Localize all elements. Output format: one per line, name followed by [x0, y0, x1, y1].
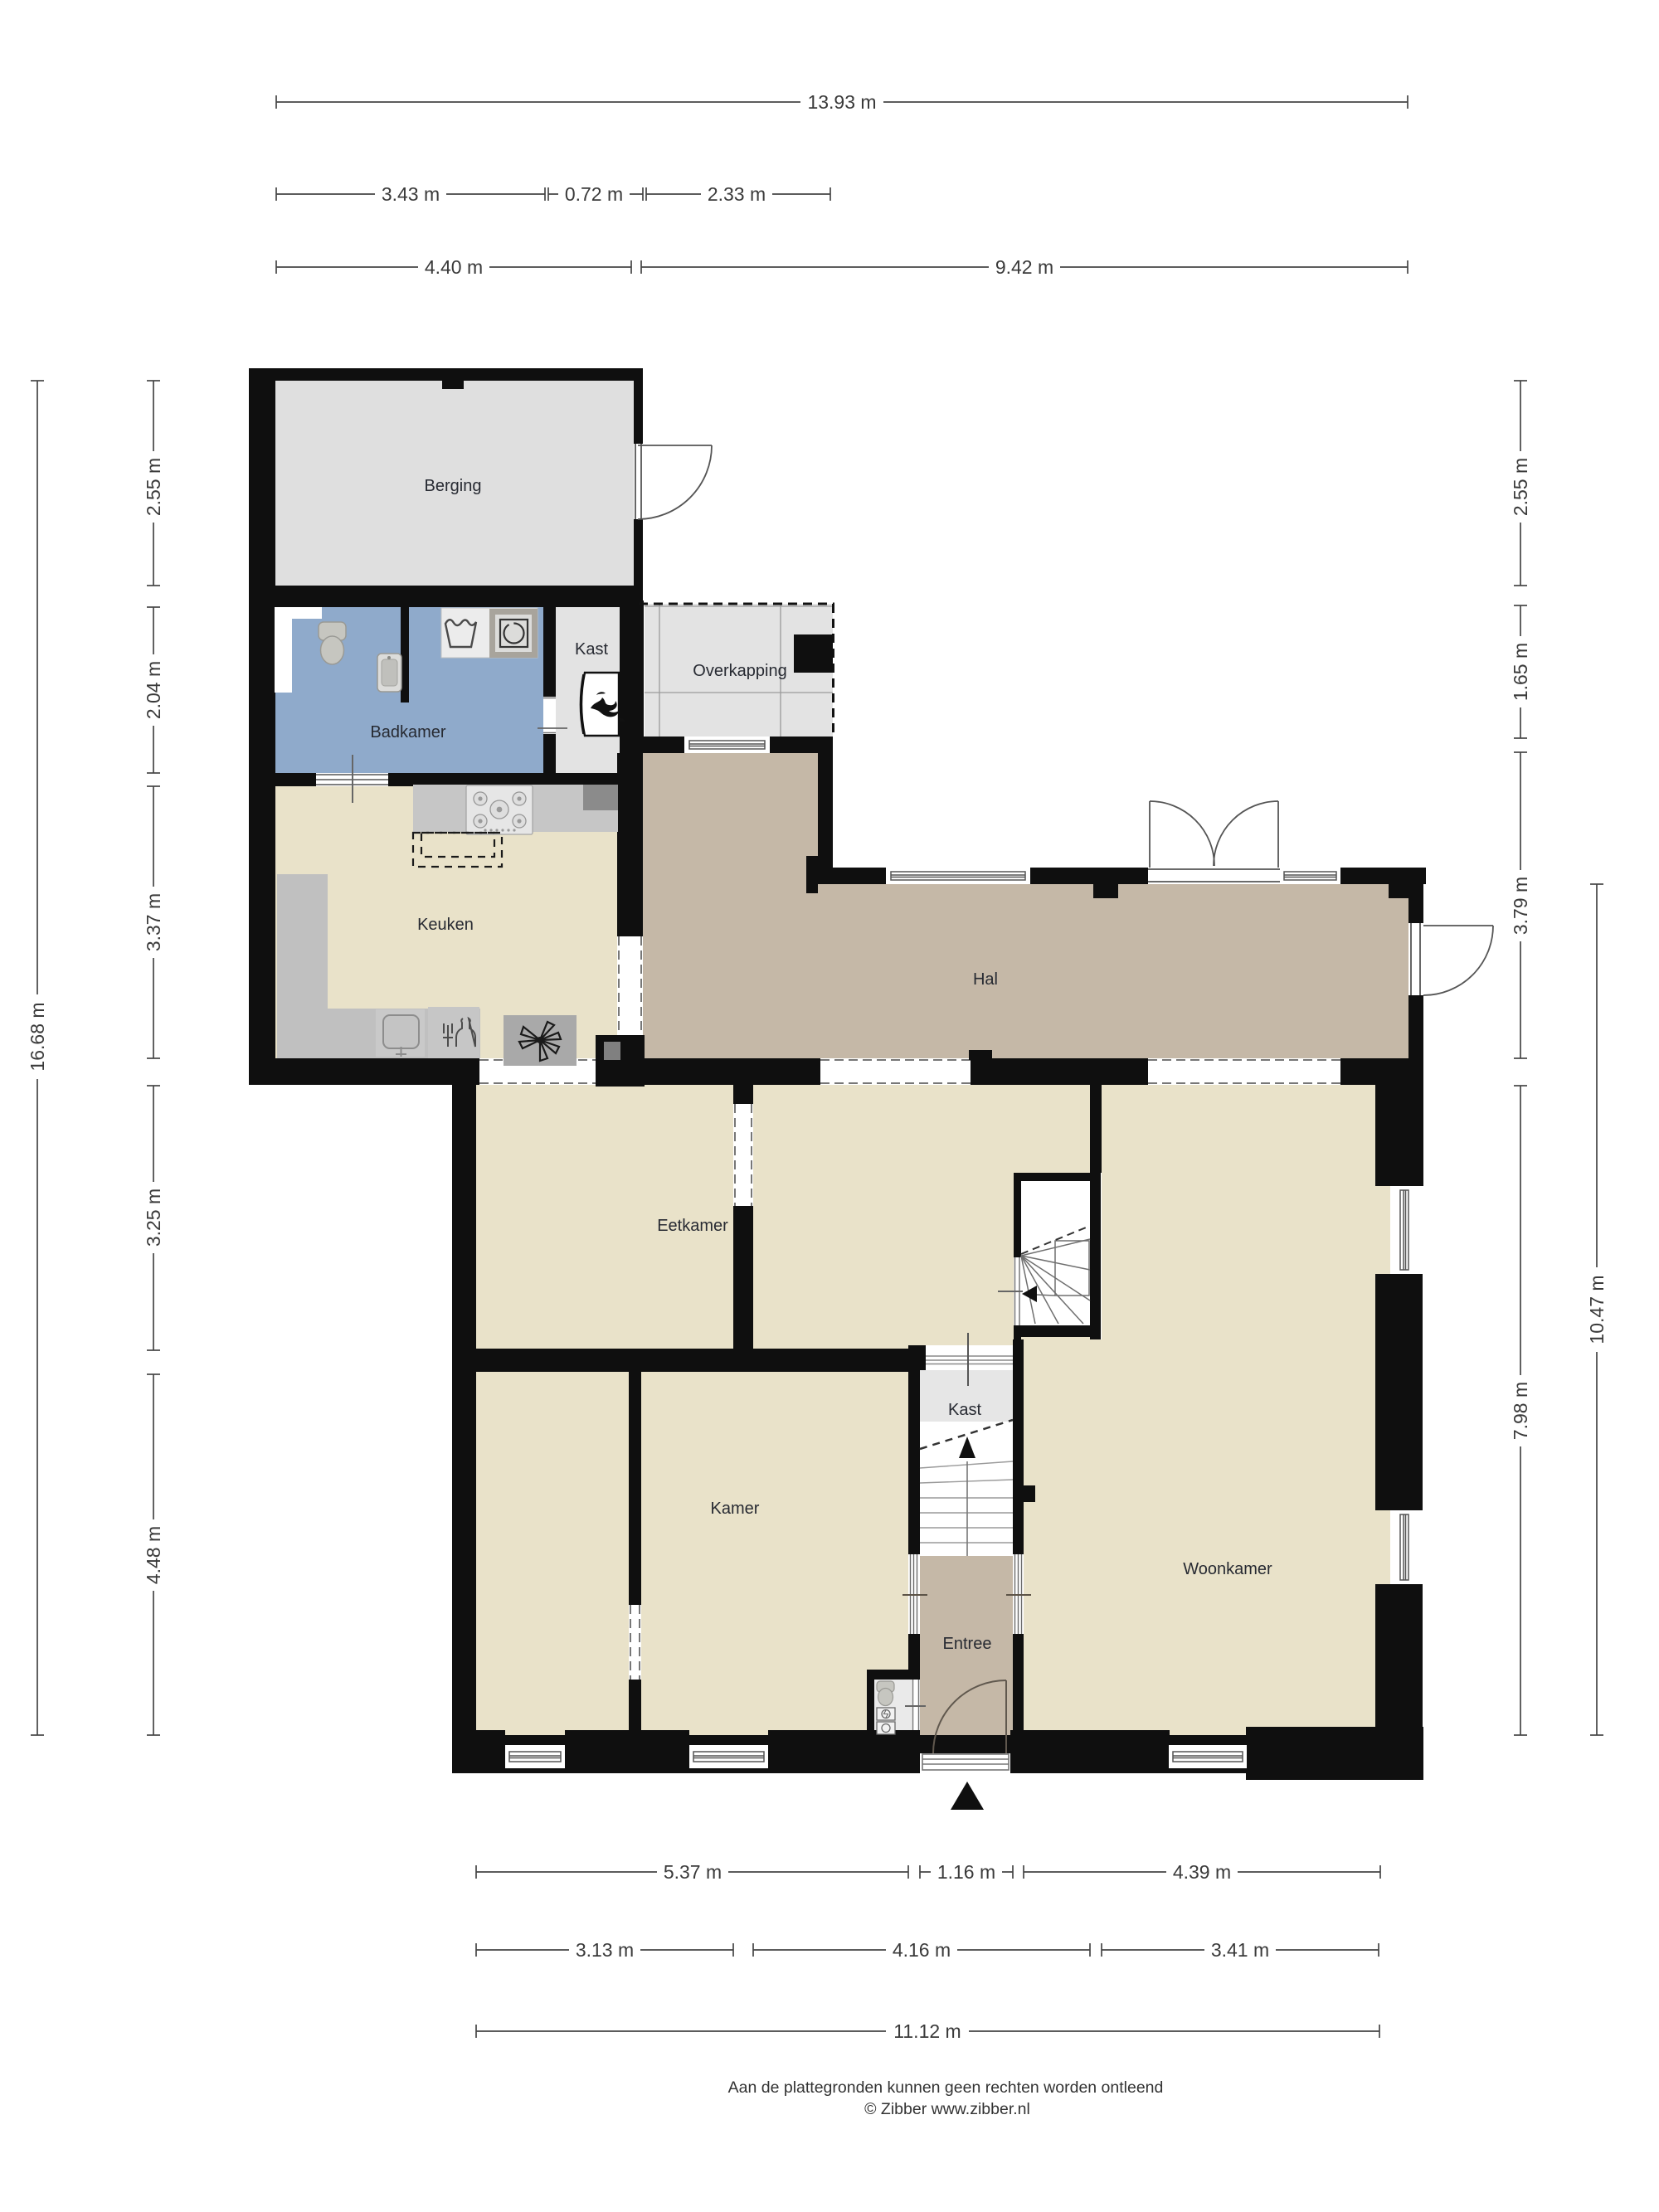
svg-text:Entree: Entree — [943, 1635, 992, 1653]
svg-text:2.33 m: 2.33 m — [708, 183, 766, 205]
svg-text:13.93 m: 13.93 m — [807, 91, 876, 113]
svg-text:Kast: Kast — [575, 640, 608, 659]
svg-text:4.40 m: 4.40 m — [425, 256, 483, 278]
svg-text:11.12 m: 11.12 m — [893, 2020, 961, 2042]
svg-text:3.41 m: 3.41 m — [1211, 1939, 1269, 1961]
svg-text:Woonkamer: Woonkamer — [1183, 1560, 1272, 1578]
svg-text:Keuken: Keuken — [417, 916, 474, 934]
svg-text:0.72 m: 0.72 m — [565, 183, 623, 205]
svg-text:3.13 m: 3.13 m — [576, 1939, 634, 1961]
svg-text:4.16 m: 4.16 m — [893, 1939, 951, 1961]
svg-text:5.37 m: 5.37 m — [664, 1861, 722, 1883]
svg-text:2.55 m: 2.55 m — [1510, 458, 1531, 516]
svg-text:9.42 m: 9.42 m — [995, 256, 1053, 278]
svg-text:3.79 m: 3.79 m — [1510, 877, 1531, 935]
svg-text:3.43 m: 3.43 m — [382, 183, 440, 205]
svg-text:1.16 m: 1.16 m — [937, 1861, 995, 1883]
svg-text:1.65 m: 1.65 m — [1510, 643, 1531, 701]
svg-text:Eetkamer: Eetkamer — [657, 1217, 728, 1235]
svg-text:7.98 m: 7.98 m — [1510, 1382, 1531, 1440]
svg-text:10.47 m: 10.47 m — [1586, 1275, 1608, 1344]
svg-text:3.37 m: 3.37 m — [143, 893, 164, 951]
svg-text:16.68 m: 16.68 m — [27, 1002, 48, 1071]
svg-text:3.25 m: 3.25 m — [143, 1189, 164, 1247]
svg-text:2.04 m: 2.04 m — [143, 661, 164, 719]
svg-text:Overkapping: Overkapping — [693, 662, 786, 680]
svg-text:4.48 m: 4.48 m — [143, 1526, 164, 1584]
svg-text:Berging: Berging — [425, 477, 482, 495]
svg-text:Kast: Kast — [948, 1401, 981, 1419]
svg-text:Aan de plattegronden kunnen ge: Aan de plattegronden kunnen geen rechten… — [728, 2078, 1164, 2097]
svg-text:© Zibber www.zibber.nl: © Zibber www.zibber.nl — [864, 2100, 1030, 2118]
svg-text:Badkamer: Badkamer — [370, 723, 445, 741]
svg-text:Kamer: Kamer — [711, 1500, 760, 1518]
svg-text:2.55 m: 2.55 m — [143, 458, 164, 516]
svg-text:4.39 m: 4.39 m — [1173, 1861, 1231, 1883]
svg-text:Hal: Hal — [973, 970, 998, 989]
